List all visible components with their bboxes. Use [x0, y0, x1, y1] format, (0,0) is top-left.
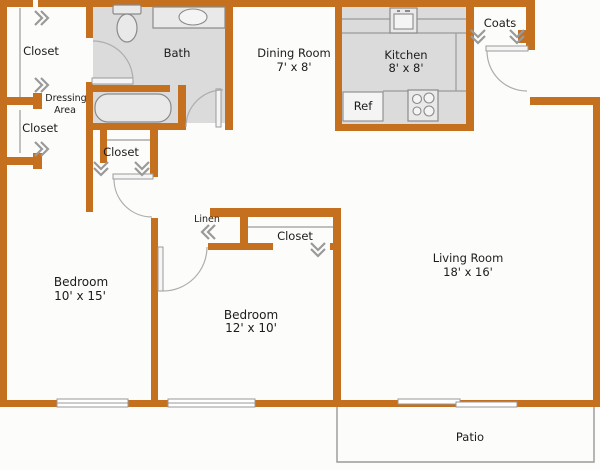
kitchen-dims: 8' x 8' [388, 61, 423, 75]
bedroom1-label: Bedroom [54, 275, 108, 289]
bath-door-panel [216, 89, 221, 127]
stove-burner [413, 95, 422, 104]
hall-closet-label: Closet [103, 145, 139, 159]
chevron-down-icon [135, 162, 149, 175]
wall-closet-stub [330, 243, 340, 250]
stove-burner [424, 106, 434, 116]
wall-living-bedroom2 [333, 208, 341, 400]
stove-burner [424, 93, 434, 103]
chevron-right-icon [35, 11, 48, 25]
wall-right [593, 97, 600, 407]
hall-door-panel [113, 174, 153, 179]
bedroom2-door-arc [163, 247, 207, 291]
floor-plan-svg: Closet Dressing Area Closet Bath Dining … [0, 0, 600, 470]
wall-kitchen-right [466, 0, 474, 131]
entry-door-arc [487, 51, 527, 91]
bath-inner-door-panel [92, 78, 133, 84]
bath-label: Bath [164, 46, 191, 60]
closet-left-label: Closet [22, 121, 58, 135]
kitchen-sink-basin [394, 14, 413, 29]
chevron-down-icon [94, 162, 108, 175]
bedroom2-dims: 12' x 10' [225, 321, 277, 335]
dining-room-label: Dining Room [257, 46, 331, 60]
bathtub [95, 94, 171, 122]
patio-slider-panel-a [398, 399, 460, 404]
stove [408, 90, 438, 121]
kitchen-faucet-icon [397, 10, 400, 12]
bedroom2-door-panel [158, 247, 163, 291]
chevron-right-icon [35, 78, 48, 92]
stove-burner [413, 107, 421, 115]
dressing-area-label-line2: Area [54, 105, 76, 116]
bedroom1-dims: 10' x 15' [54, 289, 106, 303]
wall-coats-right [526, 0, 535, 50]
kitchen-label: Kitchen [384, 48, 427, 62]
wall-bath-bottom [86, 123, 186, 130]
living-room-label: Living Room [433, 251, 504, 265]
wall-kitchen-left [335, 0, 342, 131]
hall-door-arc [114, 179, 152, 217]
wall-tub-alcove-top [86, 85, 170, 92]
wall-bath-left-a [86, 0, 93, 38]
dining-room-dims: 7' x 8' [276, 60, 311, 74]
wall-bedroom-divider [151, 218, 158, 400]
floor-plan: Closet Dressing Area Closet Bath Dining … [0, 0, 600, 470]
wall-entry-top [530, 97, 600, 105]
wall-left [0, 0, 7, 407]
wall-kitchen-bottom [335, 124, 474, 131]
wall-dressing-1-cap [33, 93, 42, 109]
patio-slider-panel-b [456, 402, 517, 407]
chevron-down-icon [311, 243, 325, 256]
bedroom2-closet-label: Closet [277, 229, 313, 243]
patio-label: Patio [456, 430, 484, 444]
linen-label: Linen [194, 214, 220, 225]
closet-top-left-label: Closet [23, 44, 59, 58]
refrigerator-label: Ref [354, 99, 374, 113]
chevron-left-icon [202, 225, 215, 239]
wall-bath-dining [225, 0, 233, 130]
entry-door-panel [486, 46, 528, 51]
kitchen-faucet-handle-icon [405, 10, 410, 12]
wall-linen-bottom [208, 243, 273, 250]
toilet-tank [113, 5, 141, 14]
living-room-dims: 18' x 16' [443, 265, 493, 279]
wall-bath-left-b [86, 82, 93, 212]
bath-sink-basin [179, 9, 207, 25]
wall-closetblock-top [210, 208, 340, 217]
wall-hallcloset-right [150, 130, 158, 177]
bedroom2-label: Bedroom [224, 308, 278, 322]
dressing-area-label-line1: Dressing [45, 93, 86, 104]
toilet-bowl [117, 14, 137, 42]
coats-label: Coats [484, 16, 517, 30]
